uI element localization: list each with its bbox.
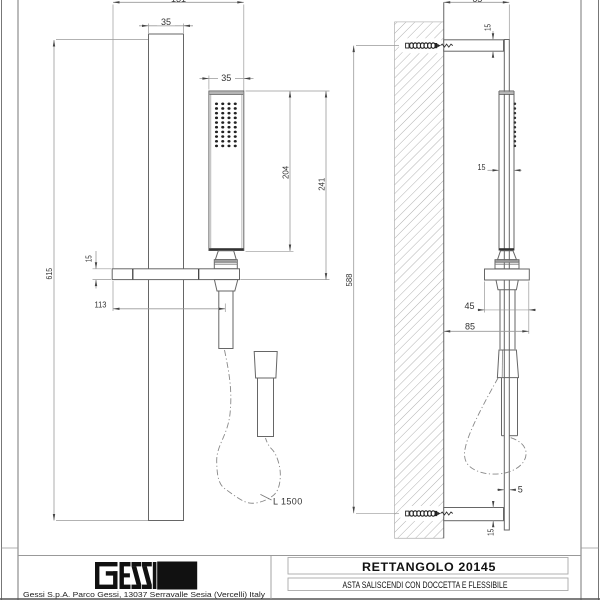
svg-text:241: 241 xyxy=(317,177,326,190)
svg-text:15: 15 xyxy=(478,163,486,172)
svg-text:65: 65 xyxy=(472,0,482,4)
svg-text:15: 15 xyxy=(486,529,495,536)
svg-text:RETTANGOLO 20145: RETTANGOLO 20145 xyxy=(362,560,496,574)
svg-text:204: 204 xyxy=(281,165,290,179)
svg-text:113: 113 xyxy=(95,301,107,310)
svg-text:131: 131 xyxy=(171,0,186,4)
svg-text:L 1500: L 1500 xyxy=(273,497,303,507)
svg-text:588: 588 xyxy=(345,273,354,286)
svg-text:615: 615 xyxy=(45,268,54,280)
svg-text:5: 5 xyxy=(518,484,523,494)
svg-text:15: 15 xyxy=(484,24,493,31)
svg-text:35: 35 xyxy=(221,73,231,83)
svg-text:35: 35 xyxy=(161,17,171,27)
svg-text:85: 85 xyxy=(465,322,475,332)
svg-text:ASTA SALISCENDI CON DOCCETTA E: ASTA SALISCENDI CON DOCCETTA E FLESSIBIL… xyxy=(343,580,508,590)
svg-text:45: 45 xyxy=(464,301,474,311)
svg-text:15: 15 xyxy=(85,255,94,262)
svg-text:Gessi S.p.A. Parco Gessi,: Gessi S.p.A. Parco Gessi, 13037 Serraval… xyxy=(23,590,265,599)
